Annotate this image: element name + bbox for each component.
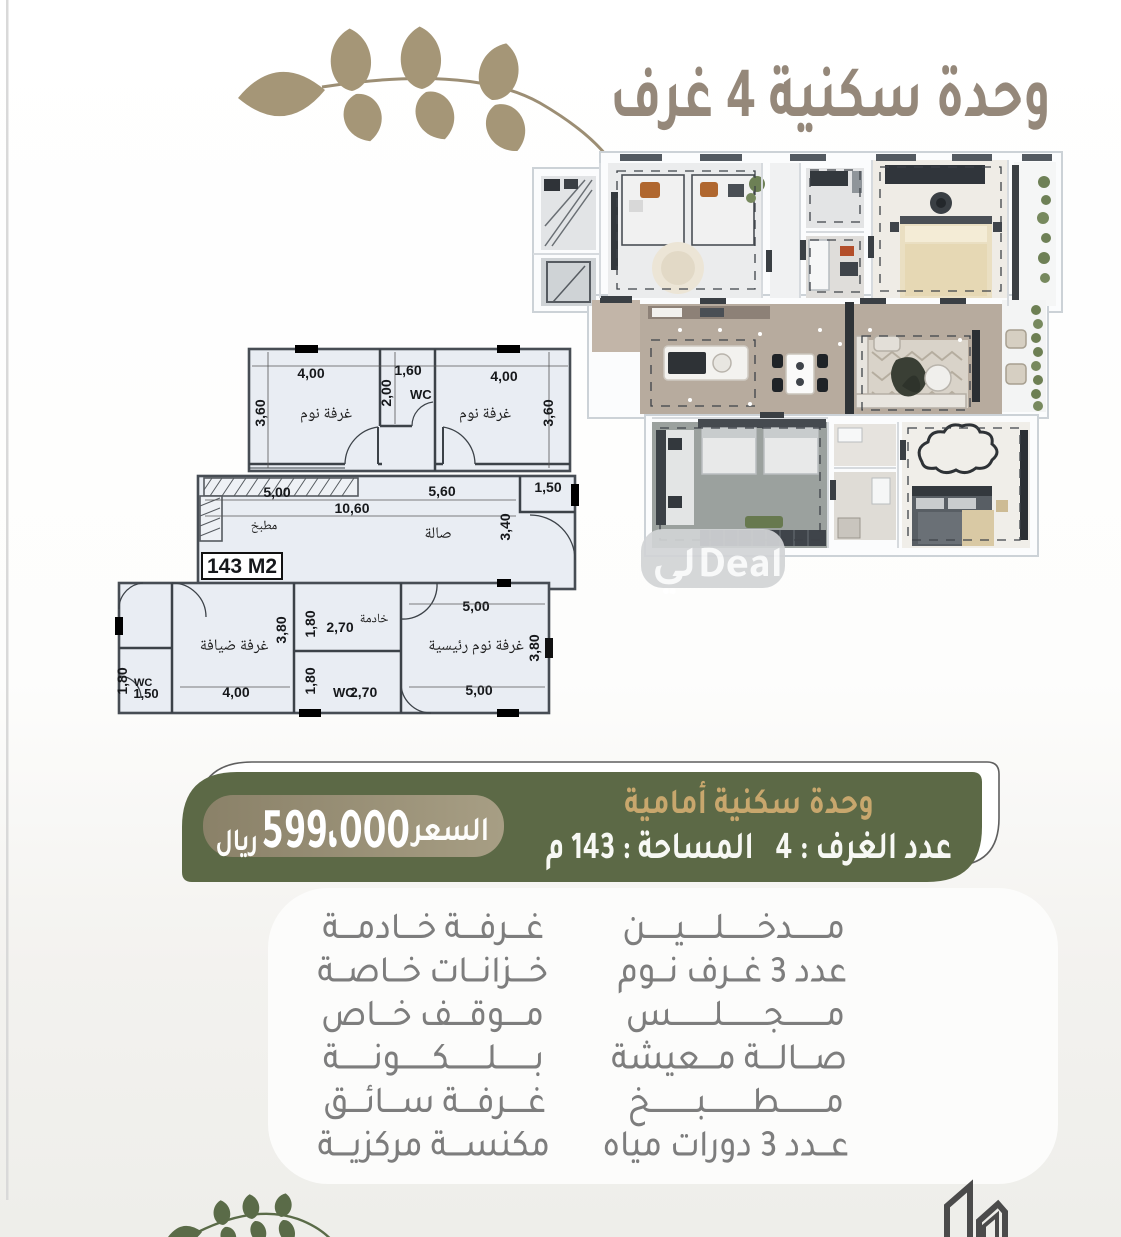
svg-text:143 M2: 143 M2 <box>207 555 277 578</box>
svg-text:3,60: 3,60 <box>540 399 556 426</box>
svg-text:4,00: 4,00 <box>490 368 517 384</box>
svg-text:5,00: 5,00 <box>462 598 489 614</box>
svg-text:1,80: 1,80 <box>114 667 130 694</box>
svg-text:5,60: 5,60 <box>428 483 455 499</box>
svg-text:1,80: 1,80 <box>302 610 318 637</box>
svg-text:3,80: 3,80 <box>273 616 289 643</box>
svg-text:3,80: 3,80 <box>526 634 542 661</box>
svg-text:2,70: 2,70 <box>350 684 377 700</box>
svg-text:2,00: 2,00 <box>378 379 394 406</box>
svg-text:1,80: 1,80 <box>302 667 318 694</box>
svg-text:WC: WC <box>134 677 152 689</box>
svg-text:2,70: 2,70 <box>326 619 353 635</box>
svg-text:4,00: 4,00 <box>297 365 324 381</box>
svg-text:5,00: 5,00 <box>465 682 492 698</box>
svg-text:1,60: 1,60 <box>394 362 421 378</box>
svg-text:3,60: 3,60 <box>252 399 268 426</box>
svg-text:10,60: 10,60 <box>334 500 369 516</box>
svg-text:3,40: 3,40 <box>497 513 513 540</box>
svg-text:1,50: 1,50 <box>534 479 561 495</box>
svg-text:4,00: 4,00 <box>222 684 249 700</box>
svg-text:WC: WC <box>410 387 432 402</box>
svg-text:5,00: 5,00 <box>263 484 290 500</box>
